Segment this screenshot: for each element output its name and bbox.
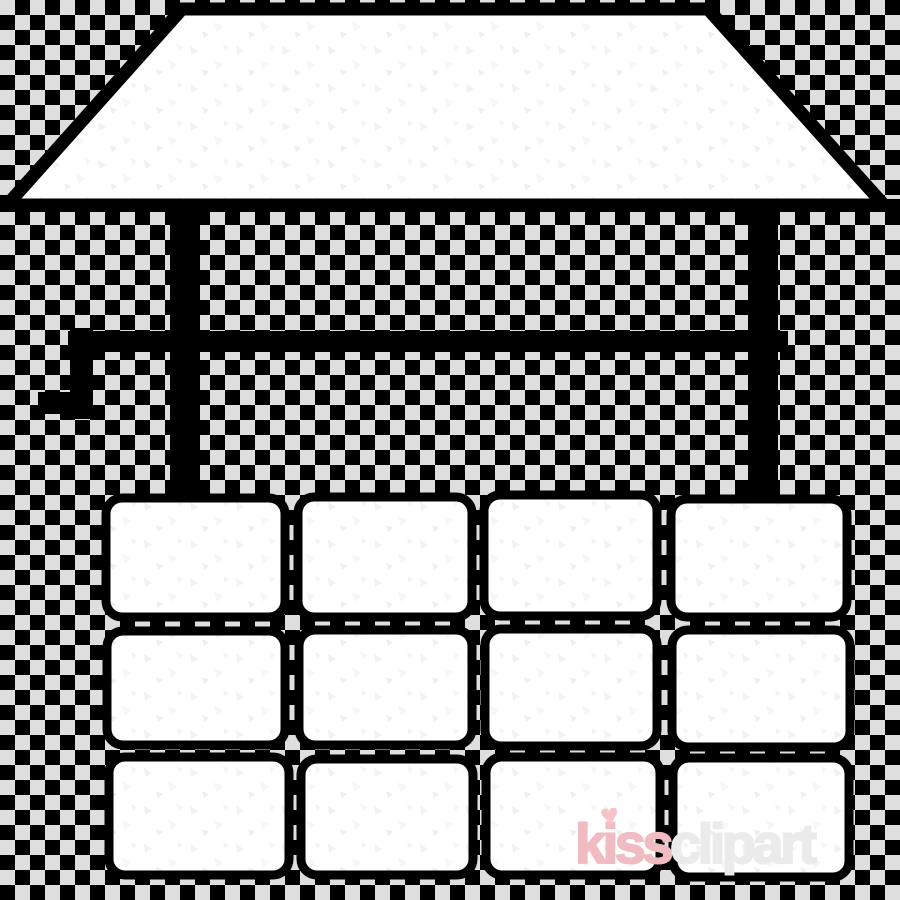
left-post xyxy=(170,205,200,505)
clipart-canvas: ♥kissclipart xyxy=(0,0,900,900)
right-post xyxy=(748,205,778,507)
well-illustration xyxy=(0,0,900,900)
watermark-brand-suffix: clipart xyxy=(670,812,814,875)
brick xyxy=(107,631,285,745)
brick xyxy=(672,630,850,747)
brick xyxy=(301,759,473,875)
watermark: ♥kissclipart xyxy=(575,816,814,872)
roof-face xyxy=(7,9,884,205)
watermark-brand-prefix: kiss xyxy=(575,812,670,875)
crank-grip-step xyxy=(62,408,90,419)
brick xyxy=(484,495,657,616)
brick xyxy=(298,497,472,617)
brick xyxy=(299,630,472,745)
axle-bar xyxy=(68,331,788,352)
brick xyxy=(106,498,285,617)
well-roof xyxy=(0,9,900,212)
crank-handle xyxy=(38,328,93,419)
brick xyxy=(109,757,289,875)
brick xyxy=(671,499,847,617)
heart-icon: ♥ xyxy=(598,798,620,832)
brick xyxy=(485,629,657,746)
